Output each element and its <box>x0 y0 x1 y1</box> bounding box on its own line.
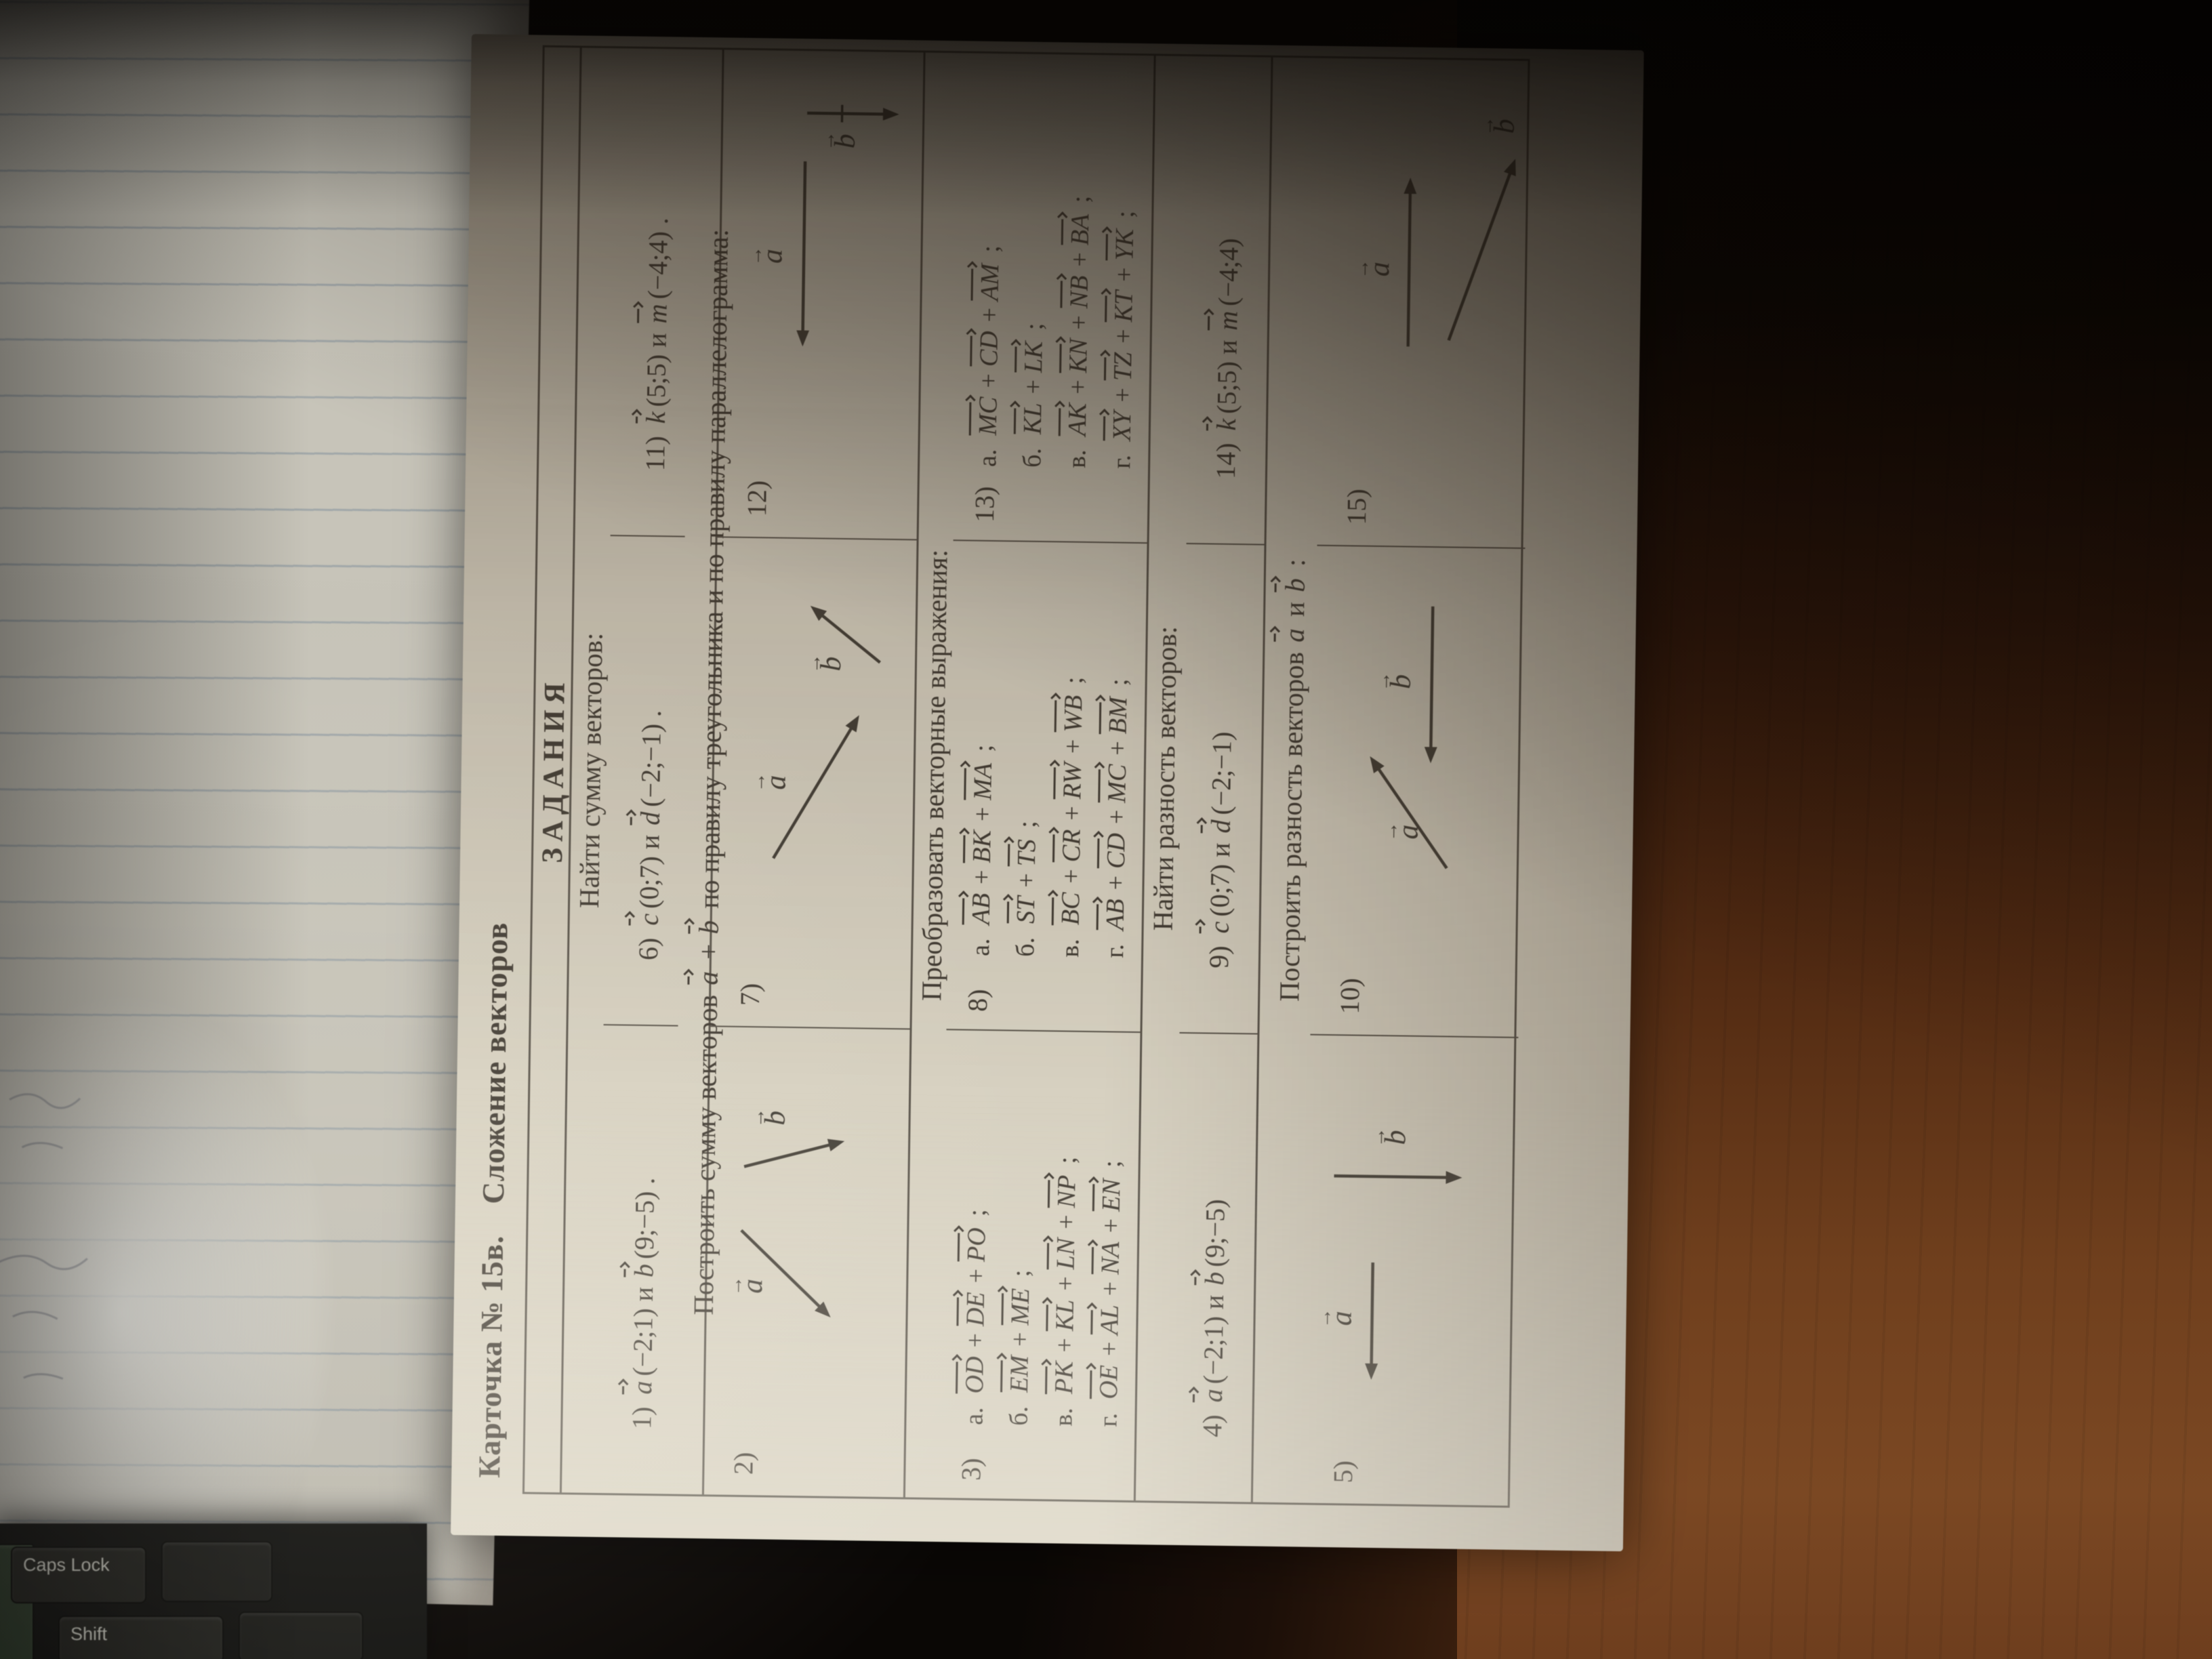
vector-symbol: TS <box>1002 834 1042 869</box>
expression-lines: а.MC+CD+AM ;б.KL+LK ;в.AK+KN+NB+BA ;г.XY… <box>962 53 1147 469</box>
item-number: 9) <box>1203 945 1235 968</box>
task-item-9: 9)c(0;7) и d(−2;−1) <box>1179 544 1264 1035</box>
item-number: 14) <box>1210 443 1242 479</box>
expression-line: а.MC+CD+AM ; <box>962 53 1013 467</box>
figure-cell-10: 10)a→b→ <box>1310 546 1525 1038</box>
vector-symbol: k <box>1200 413 1242 434</box>
vector-symbol: AB <box>956 888 997 928</box>
item-text: c(0;7) и d(−2;−1) . <box>634 710 667 928</box>
expression-line: в.BC+CR+RW+WB ; <box>1045 542 1096 958</box>
vector-symbol: b <box>1188 1267 1230 1288</box>
vector-symbol: PO <box>951 1223 992 1265</box>
vector-symbol: MC <box>963 392 1004 438</box>
vector-symbol: EM <box>994 1350 1035 1395</box>
expression-line: г.AB+CD+MC+BM ; <box>1090 543 1141 958</box>
vector-symbol: a <box>1267 623 1310 645</box>
expression-line: а.OD+DE+PO ; <box>949 1030 999 1425</box>
vector-symbol: AK <box>1052 398 1093 438</box>
worksheet-topic: Сложение векторов <box>476 922 514 1204</box>
svg-text:→: → <box>747 1107 769 1128</box>
vector-symbol: CR <box>1046 824 1087 865</box>
vector-symbol: AM <box>964 258 1005 304</box>
vector-symbol: MA <box>958 758 998 803</box>
caps-lock-key: Caps Lock <box>11 1547 146 1603</box>
vector-symbol: AB <box>1090 894 1131 933</box>
svg-text:→: → <box>1372 671 1395 691</box>
transform-item-3: 3)а.OD+DE+PO ;б.EM+ME ;в.PK+KL+LN+NP ;г.… <box>940 1030 1141 1500</box>
vector-symbol: NB <box>1054 270 1094 311</box>
item-text: c(0;7) и d(−2;−1) <box>1204 731 1237 936</box>
vector-symbol: BC <box>1046 887 1086 928</box>
item-text: a(−2;1) и b(9;−5) . <box>627 1177 661 1397</box>
vector-symbol: CD <box>1091 828 1132 872</box>
svg-text:→: → <box>1351 259 1373 279</box>
vector-symbol: k <box>630 407 672 427</box>
figure-cell-5: 5)a→b→ <box>1304 1036 1519 1506</box>
expression-line: б.EM+ME ; <box>994 1031 1044 1426</box>
item-text: k(5;5) и m(−4;4) <box>1211 238 1244 434</box>
worksheet-title: Карточка № 15в.Сложение векторов <box>472 922 514 1478</box>
photo-scene: Caps Lock Shift Карточка № 15в.Сложение … <box>0 0 2212 1659</box>
worksheet-paper: Карточка № 15в.Сложение векторов ЗАДАНИЯ… <box>451 34 1644 1551</box>
figure-cell-2: 2)a→b→ <box>704 1027 910 1497</box>
vector-symbol: KL <box>1040 1294 1080 1334</box>
vector-symbol: CD <box>964 326 1004 370</box>
vector-symbol: AL <box>1084 1300 1125 1338</box>
task-item-6: 6)c(0;7) и d(−2;−1) . <box>604 536 685 1026</box>
vector-symbol: a <box>1187 1384 1229 1406</box>
vector-symbol: MC <box>1092 759 1132 806</box>
figure-cell-7: 7)a→b→ <box>711 537 917 1029</box>
item-number: 8) <box>962 989 994 1012</box>
expression-line: г.OE+AL+NA+EN ; <box>1083 1032 1133 1427</box>
shift-label: Shift <box>70 1624 107 1645</box>
task-item-14: 14)k(5;5) и m(−4;4) <box>1187 56 1271 546</box>
vector-symbol: c <box>623 908 665 928</box>
vector-symbol: TZ <box>1098 347 1139 384</box>
vector-symbol: LK <box>1008 336 1049 375</box>
svg-text:→: → <box>1367 1127 1389 1147</box>
vector-symbol: OE <box>1084 1360 1124 1402</box>
vector-symbol: BA <box>1055 209 1096 248</box>
vector-symbol: d <box>624 806 666 828</box>
vector-symbol: WB <box>1048 690 1089 735</box>
worksheet-card-number: Карточка № 15в. <box>472 1235 510 1478</box>
expression-line: г.XY+TZ+KT+YK ; <box>1097 55 1147 469</box>
tasks-table: ЗАДАНИЯ Найти сумму векторов: 1)a(−2;1) … <box>523 45 1530 1508</box>
figure-cell-12: 12)a→b→ <box>718 49 924 540</box>
item-number: 1) <box>626 1406 657 1429</box>
unlabeled-key <box>161 1541 272 1602</box>
expression-line: а.AB+BK+MA ; <box>956 541 1006 956</box>
vector-symbol: b <box>617 1258 659 1280</box>
vector-symbol: m <box>631 299 674 327</box>
sum-figures-row: 2)a→b→ 7)a→b→ 12)a→b→ <box>704 49 926 1497</box>
item-number: 6) <box>632 937 664 960</box>
vector-symbol: XY <box>1097 406 1138 444</box>
laptop-keyboard: Caps Lock Shift <box>0 1523 427 1659</box>
item-text: a(−2;1) и b(9;−5) <box>1197 1199 1231 1406</box>
caps-lock-label: Caps Lock <box>23 1555 110 1576</box>
figure-cell-15: 15)a→b→ <box>1317 58 1532 549</box>
task-item-1: 1)a(−2;1) и b(9;−5) . <box>597 1025 678 1494</box>
vector-symbol: DE <box>950 1287 991 1329</box>
vector-symbol: KN <box>1053 333 1094 376</box>
expression-line: б.KL+LK ; <box>1007 54 1058 468</box>
svg-text:→: → <box>745 246 766 266</box>
vector-symbol: NA <box>1085 1237 1126 1277</box>
task-item-4: 4)a(−2;1) и b(9;−5) <box>1173 1033 1258 1502</box>
svg-text:→: → <box>1380 821 1402 842</box>
item-number: 13) <box>968 486 1001 523</box>
vector-symbol: d <box>1195 815 1237 836</box>
vector-symbol: EN <box>1086 1174 1127 1214</box>
transform-item-8: 8)а.AB+BK+MA ;б.ST+TS ;в.BC+CR+RW+WB ;г.… <box>946 541 1147 1033</box>
vector-symbol: KT <box>1099 285 1139 325</box>
notebook-paper <box>0 0 530 1605</box>
vector-symbol: RW <box>1047 758 1088 802</box>
vector-symbol: BK <box>957 825 998 866</box>
vector-symbol: c <box>1193 916 1235 937</box>
svg-text:→: → <box>1476 116 1498 136</box>
vector-symbol: BM <box>1093 692 1134 737</box>
svg-text:→: → <box>803 653 825 674</box>
pencil-scribbles <box>0 1059 200 1483</box>
vector-symbol: LN <box>1041 1233 1082 1272</box>
vector-symbol: ST <box>1001 891 1042 926</box>
diff-figures-row: 5)a→b→ 10)a→b→ 15)a→b→ <box>1304 58 1532 1506</box>
vector-symbol: NP <box>1042 1170 1082 1210</box>
vector-symbol: PK <box>1039 1356 1080 1397</box>
item-number: 3) <box>955 1458 987 1481</box>
vector-symbol: b <box>1268 573 1311 595</box>
item-number: 11) <box>639 436 672 471</box>
svg-text:→: → <box>724 1275 746 1296</box>
vector-symbol: KL <box>1008 398 1048 437</box>
item-text: k(5;5) и m(−4;4) . <box>640 218 674 427</box>
vector-symbol: a <box>616 1376 658 1397</box>
transform-items-row: 3)а.OD+DE+PO ;б.EM+ME ;в.PK+KL+LN+NP ;г.… <box>940 53 1156 1500</box>
item-number: 4) <box>1196 1414 1228 1437</box>
vector-symbol: m <box>1202 306 1244 333</box>
vector-symbol: ME <box>995 1283 1036 1328</box>
vector-symbol: YK <box>1099 224 1140 263</box>
unlabeled-key <box>239 1612 363 1659</box>
svg-text:→: → <box>817 131 839 151</box>
expression-line: б.ST+TS ; <box>1000 541 1051 957</box>
expression-line: в.AK+KN+NB+BA ; <box>1052 54 1103 468</box>
task-item-11: 11)k(5;5) и m(−4;4) . <box>611 48 692 537</box>
shift-key: Shift <box>58 1616 224 1659</box>
transform-item-13: 13)а.MC+CD+AM ;б.KL+LK ;в.AK+KN+NB+BA ;г… <box>954 53 1154 544</box>
expression-line: в.PK+KL+LN+NP ; <box>1038 1031 1088 1427</box>
expression-lines: а.AB+BK+MA ;б.ST+TS ;в.BC+CR+RW+WB ;г.AB… <box>956 541 1141 958</box>
svg-text:→: → <box>1313 1308 1335 1328</box>
expression-lines: а.OD+DE+PO ;б.EM+ME ;в.PK+KL+LN+NP ;г.OE… <box>949 1030 1133 1427</box>
svg-text:→: → <box>748 772 770 792</box>
vector-symbol: OD <box>949 1351 990 1397</box>
